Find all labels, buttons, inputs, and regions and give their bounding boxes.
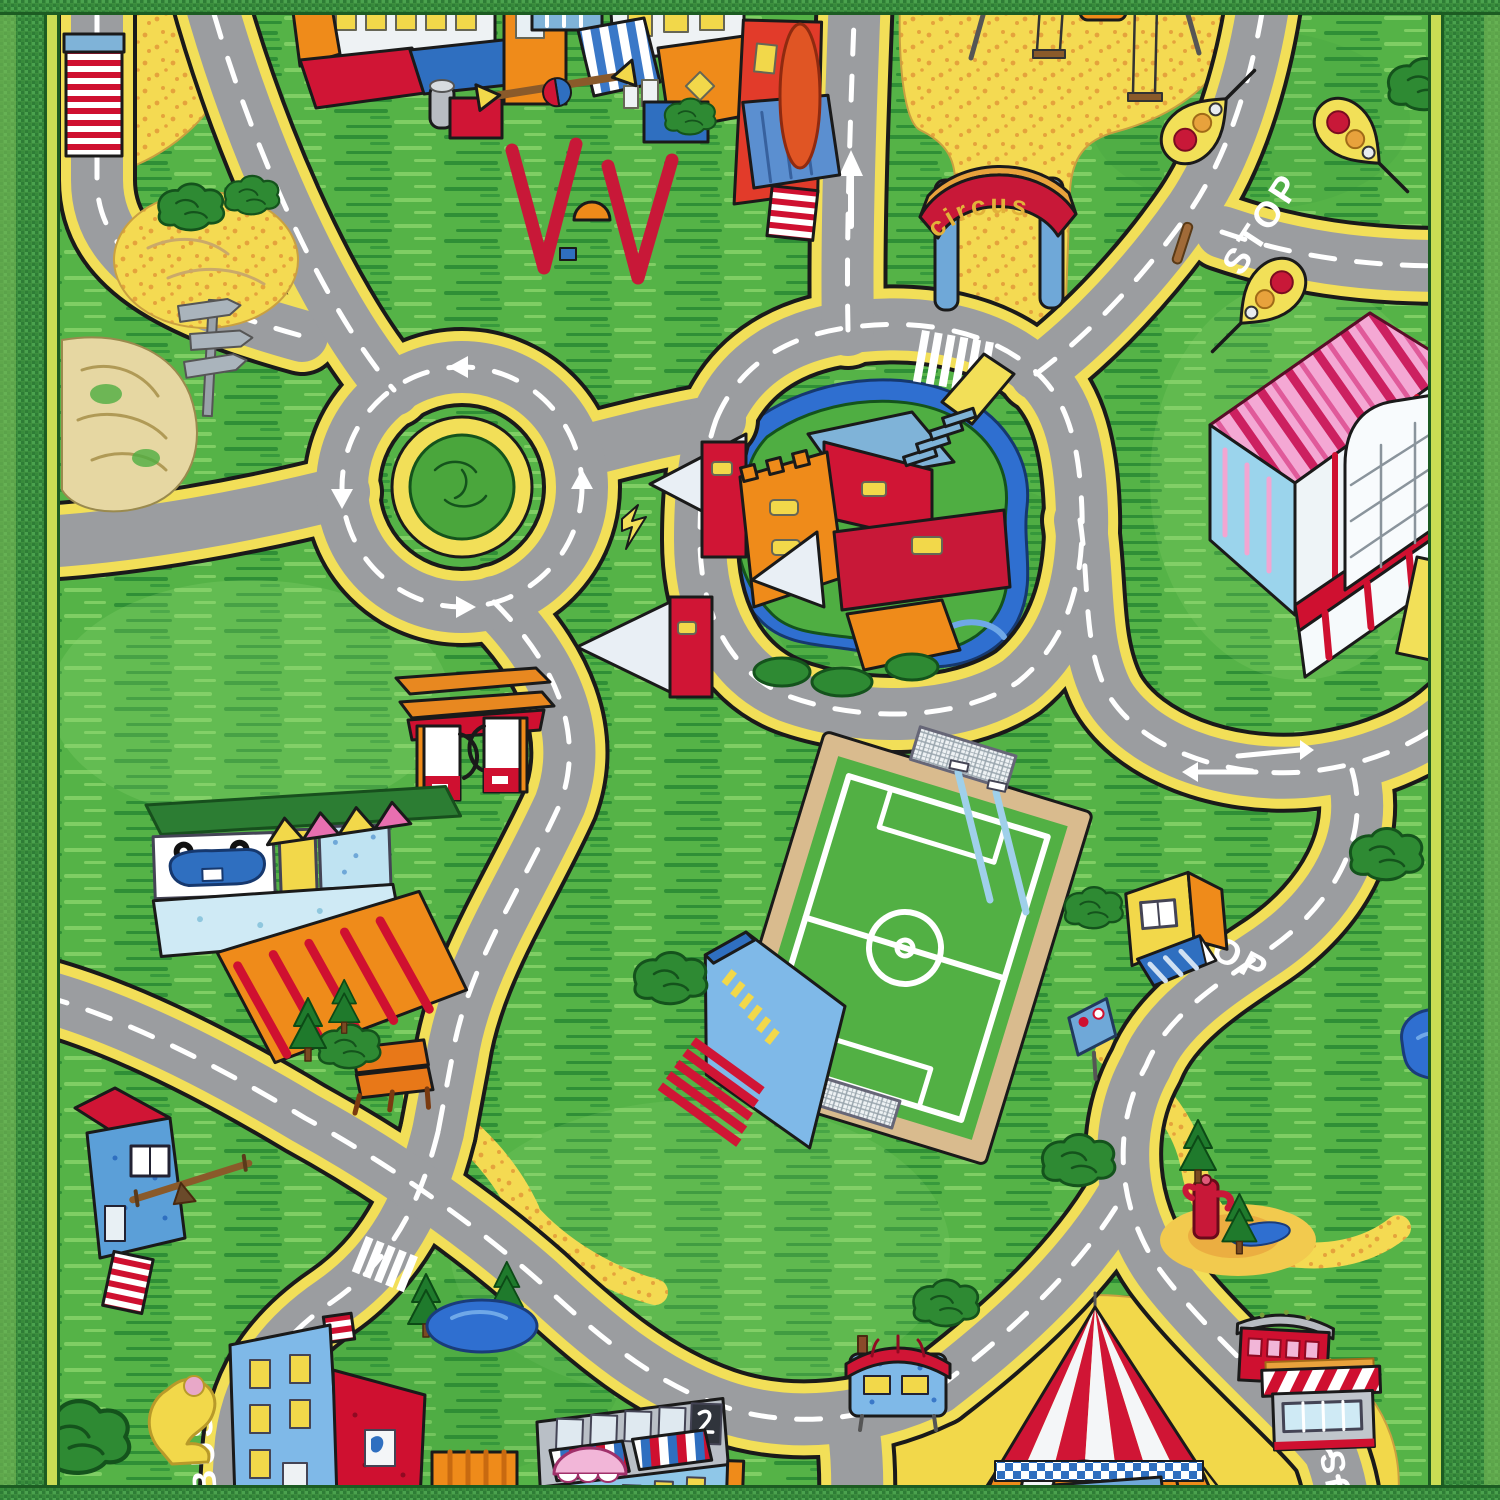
bush-icon <box>665 99 716 135</box>
play-rug: STOP STOP BUS BUS <box>0 0 1500 1500</box>
circus-stall <box>1261 1358 1382 1450</box>
striped-tower <box>64 34 124 156</box>
tree-icon <box>225 176 279 214</box>
roundabout-island <box>392 417 532 557</box>
red-cypress-tree <box>780 24 820 168</box>
bush-icon <box>914 1280 979 1326</box>
tree-icon <box>159 184 224 230</box>
bush-icon <box>1350 829 1422 880</box>
bush-icon <box>1042 1135 1114 1186</box>
pond-small <box>427 1300 537 1352</box>
bush-icon <box>319 1025 381 1069</box>
play-rug-svg: STOP STOP BUS BUS <box>0 0 1500 1500</box>
bush-icon <box>634 953 706 1004</box>
bush-icon <box>1065 887 1123 928</box>
